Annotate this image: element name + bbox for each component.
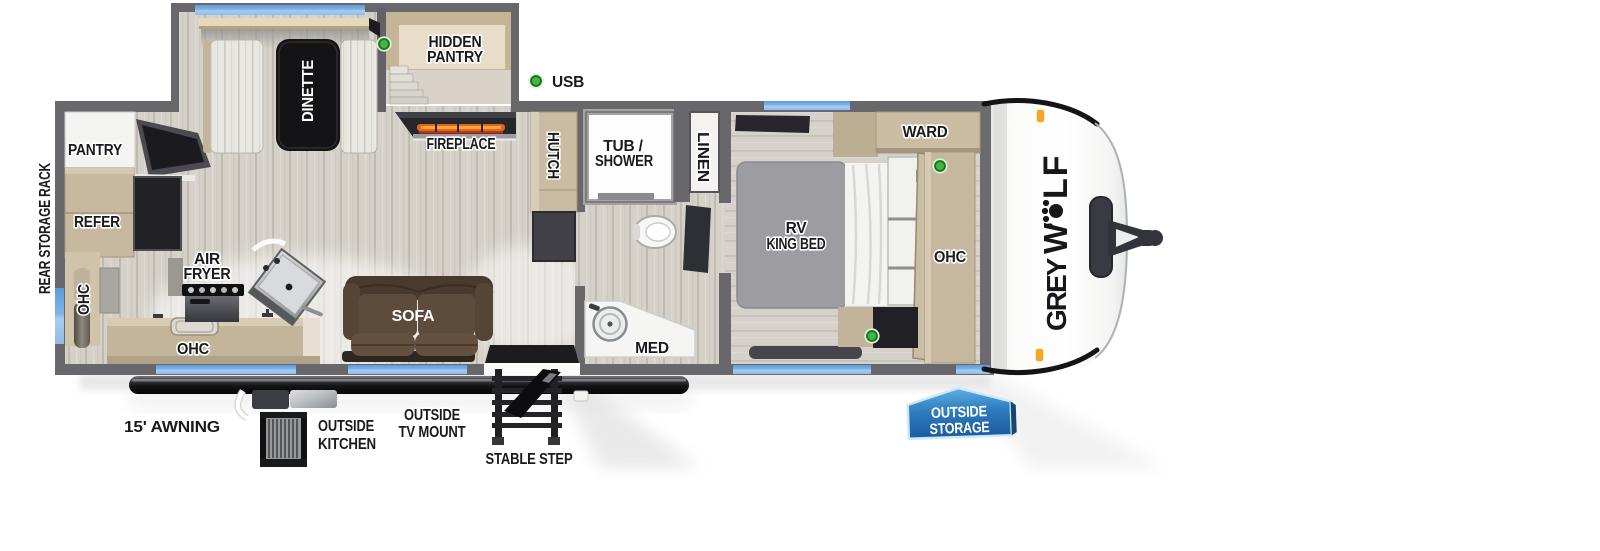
svg-text:WARD: WARD	[903, 124, 948, 141]
svg-text:LF: LF	[1037, 153, 1075, 199]
svg-text:REFER: REFER	[74, 214, 120, 231]
svg-text:W: W	[1037, 222, 1074, 254]
svg-text:OHC: OHC	[177, 341, 209, 358]
svg-text:SHOWER: SHOWER	[595, 153, 653, 170]
svg-text:STORAGE: STORAGE	[929, 419, 990, 438]
svg-text:MED: MED	[635, 340, 669, 357]
svg-text:KING BED: KING BED	[767, 236, 826, 253]
svg-text:DINETTE: DINETTE	[300, 60, 317, 122]
svg-text:SOFA: SOFA	[392, 308, 435, 325]
svg-text:OUTSIDE: OUTSIDE	[404, 407, 460, 424]
svg-text:15' AWNING: 15' AWNING	[124, 419, 220, 436]
svg-text:PANTRY: PANTRY	[427, 49, 484, 66]
svg-text:RV: RV	[786, 220, 808, 237]
svg-text:FRYER: FRYER	[184, 266, 231, 283]
svg-text:OUTSIDE: OUTSIDE	[318, 418, 374, 435]
svg-text:PANTRY: PANTRY	[68, 142, 123, 159]
svg-text:FIREPLACE: FIREPLACE	[427, 136, 496, 153]
svg-text:LINEN: LINEN	[694, 132, 711, 182]
svg-text:OHC: OHC	[934, 249, 966, 266]
svg-text:HUTCH: HUTCH	[544, 132, 561, 179]
svg-text:GREY: GREY	[1041, 257, 1072, 331]
svg-text:OHC: OHC	[76, 284, 93, 315]
svg-text:STABLE STEP: STABLE STEP	[486, 451, 573, 468]
svg-text:KITCHEN: KITCHEN	[318, 436, 376, 453]
svg-text:TV MOUNT: TV MOUNT	[399, 424, 467, 441]
svg-text:REAR STORAGE RACK: REAR STORAGE RACK	[37, 162, 54, 294]
svg-text:USB: USB	[552, 74, 584, 91]
